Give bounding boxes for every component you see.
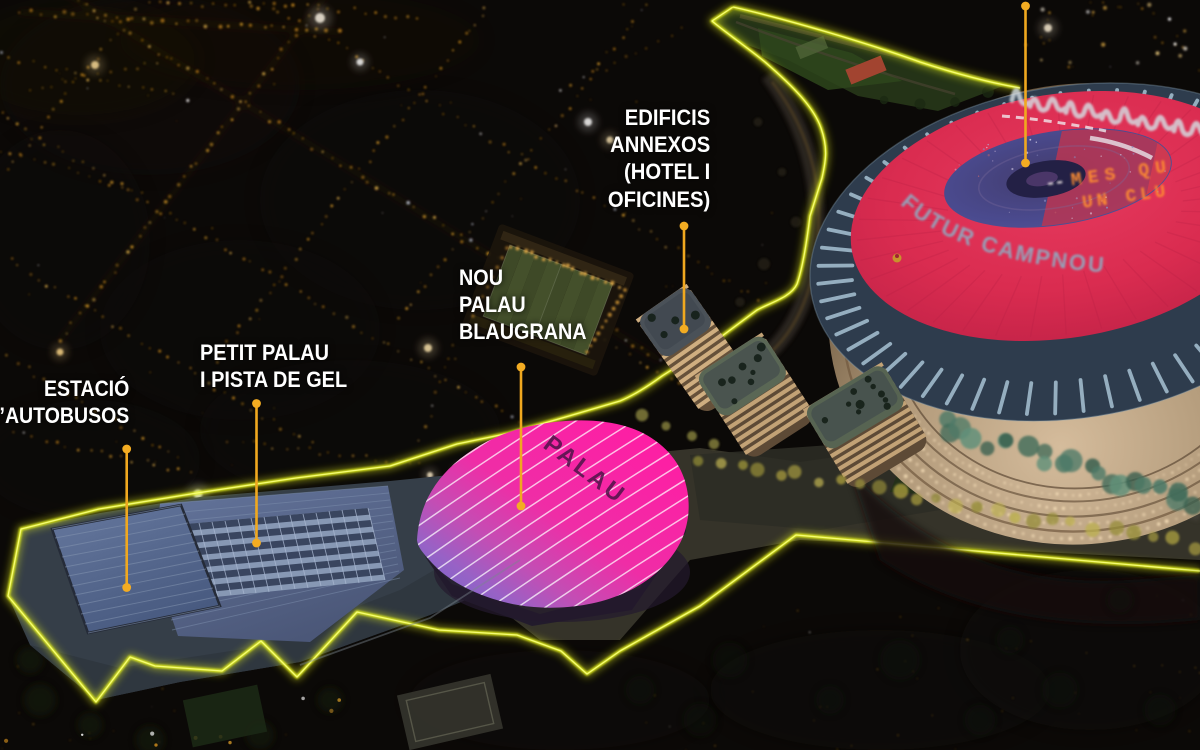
svg-text:--: -- xyxy=(1044,172,1067,195)
